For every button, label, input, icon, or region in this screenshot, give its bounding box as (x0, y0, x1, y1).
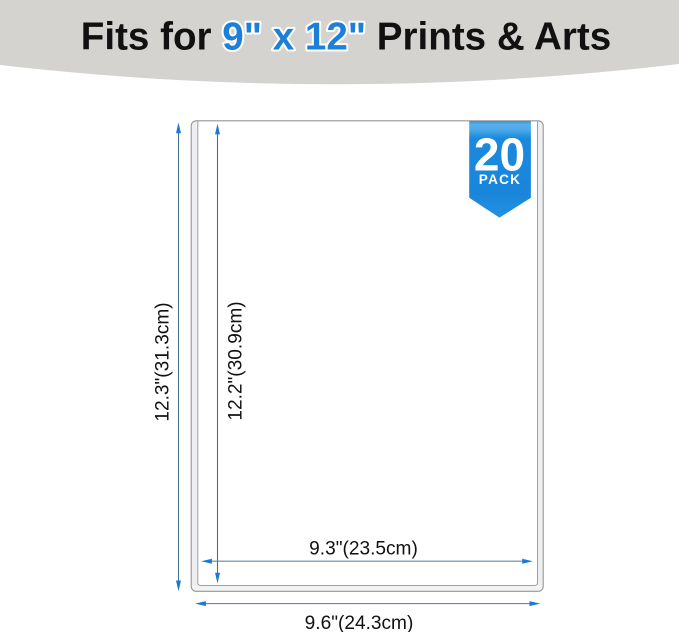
svg-text:12.2"(30.9cm): 12.2"(30.9cm) (226, 301, 247, 420)
svg-text:12.3"(31.3cm): 12.3"(31.3cm) (153, 302, 174, 421)
svg-text:9.3"(23.5cm): 9.3"(23.5cm) (309, 539, 418, 560)
svg-text:PACK: PACK (479, 172, 521, 187)
svg-text:9.6"(24.3cm): 9.6"(24.3cm) (305, 613, 414, 632)
svg-text:Fits for 9" x 12" Prints & Art: Fits for 9" x 12" Prints & Arts (81, 16, 611, 59)
